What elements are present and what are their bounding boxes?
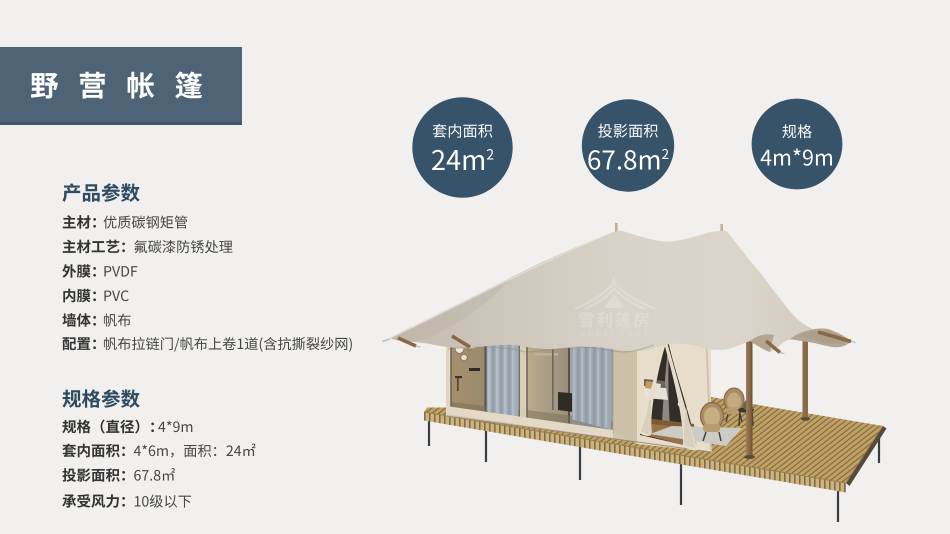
- svg-text:XUELI TENT: XUELI TENT: [579, 328, 650, 338]
